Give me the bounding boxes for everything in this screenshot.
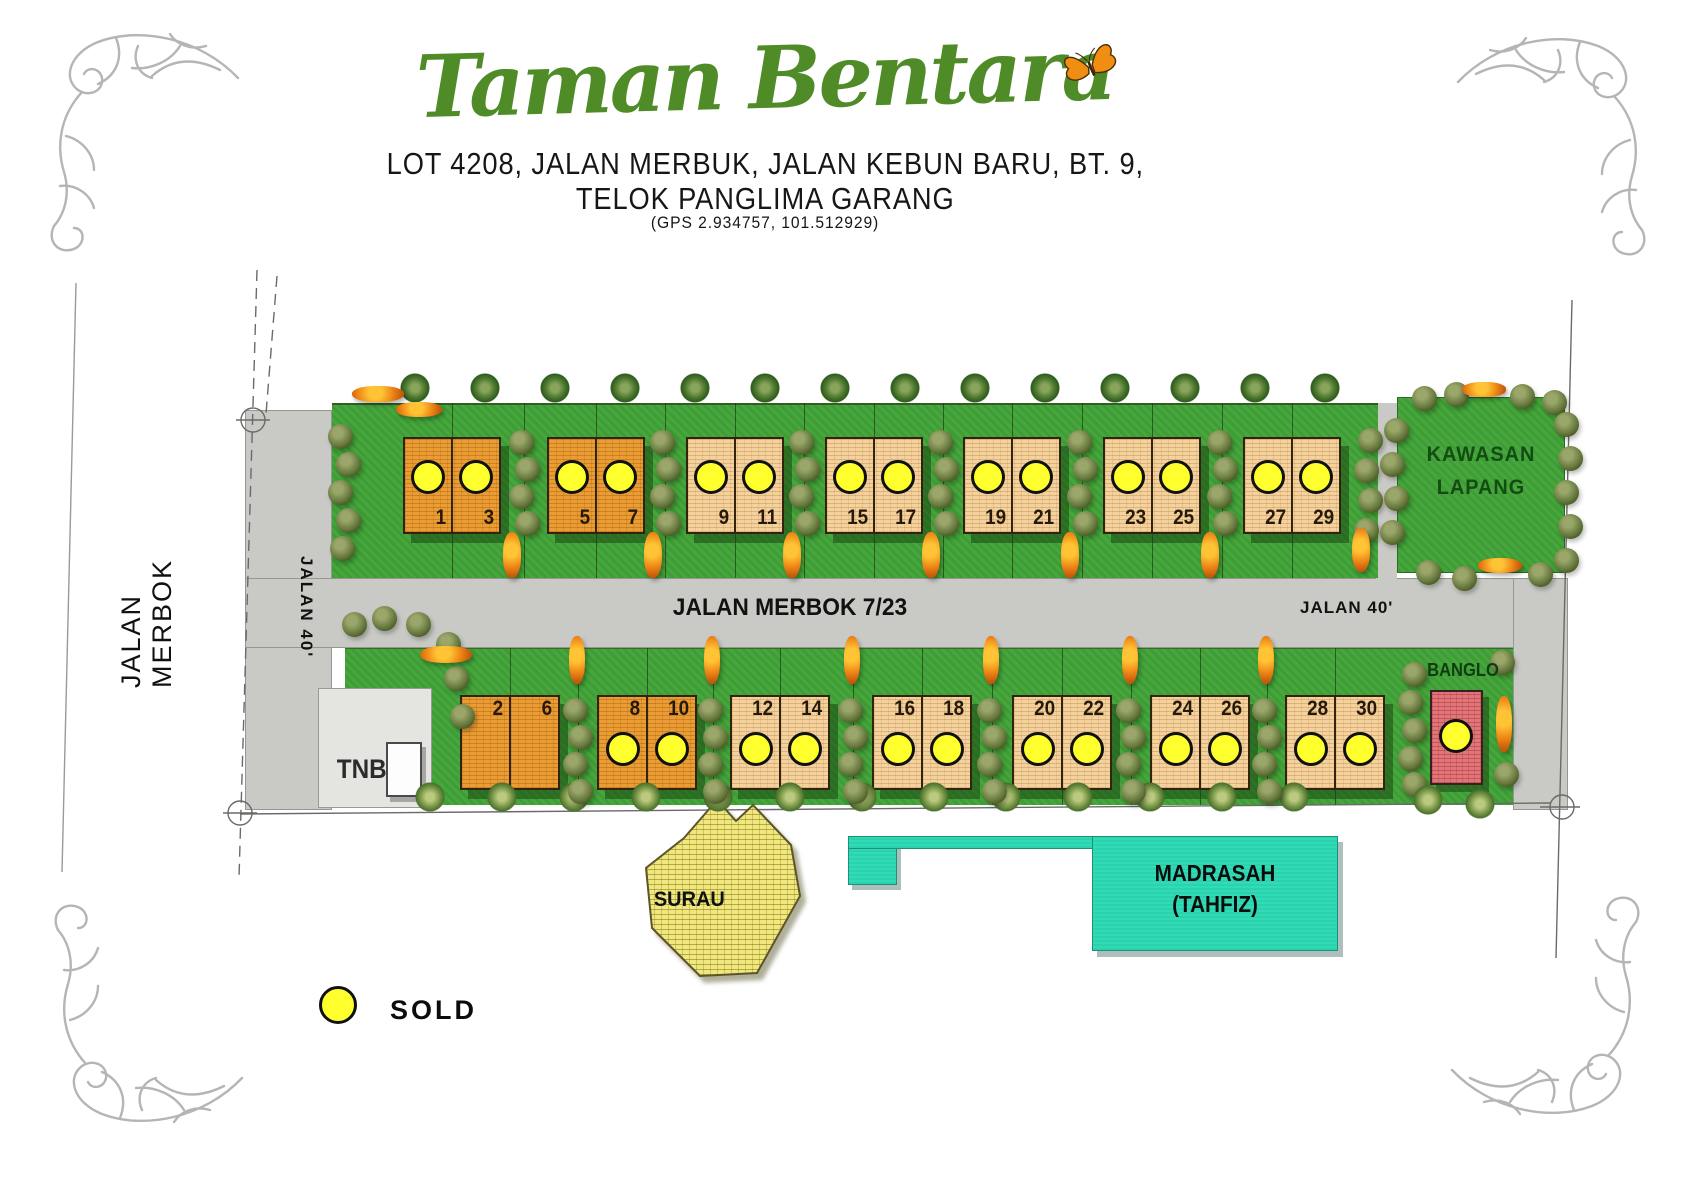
bush-icon [656, 511, 681, 536]
bush-icon [1073, 511, 1098, 536]
lot-unit-9: 9 [688, 439, 734, 532]
flower-patch-icon [783, 532, 801, 578]
lot-number: 17 [895, 506, 916, 530]
sold-marker [1159, 732, 1193, 766]
tree-icon [486, 781, 518, 813]
bush-icon [515, 457, 540, 482]
lot-block-20-22: 2022 [1012, 695, 1112, 790]
lot-block-24-26: 2426 [1150, 695, 1250, 790]
bush-icon [1067, 484, 1092, 509]
bush-icon [1494, 762, 1519, 787]
lot-number: 21 [1033, 506, 1054, 530]
lot-number: 28 [1307, 697, 1328, 721]
bush-icon [650, 484, 675, 509]
tree-icon [1239, 372, 1271, 404]
bush-icon [703, 779, 728, 804]
bush-icon [1452, 566, 1477, 591]
lot-block-19-21: 1921 [963, 437, 1061, 534]
lot-block-1-3: 13 [403, 437, 501, 534]
tree-icon [749, 372, 781, 404]
sold-marker [742, 460, 776, 494]
bush-icon [1402, 718, 1427, 743]
corner-ornament-icon [1440, 892, 1670, 1132]
sold-legend-label: SOLD [390, 995, 477, 1026]
flower-patch-icon [1462, 382, 1506, 397]
lot-number: 15 [847, 506, 868, 530]
bush-icon [1554, 412, 1579, 437]
surau-label: SURAU [654, 888, 725, 912]
lot-unit-20: 20 [1014, 697, 1061, 788]
lot-number: 1 [436, 506, 447, 530]
lot-block-9-11: 911 [686, 437, 784, 534]
sold-marker [411, 460, 445, 494]
lot-block-15-17: 1517 [825, 437, 923, 534]
lot-number: 25 [1173, 506, 1194, 530]
bush-icon [1416, 560, 1441, 585]
lot-unit-3: 3 [451, 439, 499, 532]
lot-unit-21: 21 [1011, 439, 1059, 532]
sold-marker [971, 460, 1005, 494]
gps-coordinates: (GPS 2.934757, 101.512929) [0, 213, 1530, 233]
site-plan-page: Taman Bentara LOT 4208, JALAN MERBUK, JA… [0, 0, 1697, 1200]
sold-marker [1159, 460, 1193, 494]
flower-patch-icon [1061, 532, 1079, 578]
flower-patch-icon [503, 532, 521, 578]
bush-icon [1358, 488, 1383, 513]
lot-number: 16 [894, 697, 915, 721]
bush-icon [982, 725, 1007, 750]
lot-number: 30 [1356, 697, 1377, 721]
bush-icon [789, 430, 814, 455]
bush-icon [1121, 725, 1146, 750]
tree-icon [414, 781, 446, 813]
flower-patch-icon [420, 646, 472, 663]
sold-legend-marker [319, 986, 357, 1024]
bush-icon [1252, 698, 1277, 723]
bush-icon [563, 698, 588, 723]
flower-patch-icon [922, 532, 940, 578]
road-label-main: JALAN MERBOK 7/23 [629, 594, 952, 622]
bush-icon [1067, 430, 1092, 455]
lot-unit-22: 22 [1061, 697, 1110, 788]
bush-icon [977, 752, 1002, 777]
bush-icon [568, 779, 593, 804]
lot-block-28-30: 2830 [1285, 695, 1385, 790]
lot-unit-11: 11 [734, 439, 782, 532]
sold-marker [739, 732, 773, 766]
tree-icon [1029, 372, 1061, 404]
lot-unit-24: 24 [1152, 697, 1199, 788]
bush-icon [568, 725, 593, 750]
lot-number: 27 [1265, 506, 1286, 530]
bush-icon [1358, 428, 1383, 453]
sold-marker [788, 732, 822, 766]
road-label-right-width: JALAN 40' [1300, 598, 1393, 618]
lot-unit-5: 5 [549, 439, 595, 532]
sold-marker [1021, 732, 1055, 766]
bush-icon [1412, 386, 1437, 411]
flower-patch-icon [352, 386, 404, 402]
lot-number: 20 [1034, 697, 1055, 721]
bush-icon [515, 511, 540, 536]
lot-unit-19: 19 [965, 439, 1011, 532]
bush-icon [1558, 446, 1583, 471]
bush-icon [934, 457, 959, 482]
bush-icon [1354, 458, 1379, 483]
lot-unit-28: 28 [1287, 697, 1334, 788]
bush-icon [1213, 511, 1238, 536]
lot-unit-26: 26 [1199, 697, 1248, 788]
bush-icon [444, 666, 469, 691]
sold-marker [603, 460, 637, 494]
tree-icon [1464, 788, 1496, 820]
bush-icon [1554, 548, 1579, 573]
address-line-2: TELOK PANGLIMA GARANG [0, 181, 1530, 217]
bush-icon [1558, 514, 1583, 539]
tree-icon [819, 372, 851, 404]
flower-patch-icon [704, 636, 720, 684]
lot-block-23-25: 2325 [1103, 437, 1201, 534]
bush-icon [838, 698, 863, 723]
tree-icon [774, 781, 806, 813]
lot-block-27-29: 2729 [1243, 437, 1341, 534]
lot-number: 19 [985, 506, 1006, 530]
tree-icon [1169, 372, 1201, 404]
lot-number: 26 [1221, 697, 1242, 721]
bush-icon [703, 725, 728, 750]
sold-marker [1019, 460, 1053, 494]
bush-icon [1073, 457, 1098, 482]
lot-unit-27: 27 [1245, 439, 1291, 532]
corner-ornament-icon [24, 900, 254, 1140]
bush-icon [1252, 752, 1277, 777]
tree-icon [1206, 781, 1238, 813]
sold-marker [1343, 732, 1377, 766]
tree-icon [1062, 781, 1094, 813]
flower-patch-icon [1258, 636, 1274, 684]
sold-marker [881, 460, 915, 494]
bush-icon [1207, 430, 1232, 455]
bush-icon [1116, 698, 1141, 723]
bush-icon [934, 511, 959, 536]
flower-patch-icon [983, 636, 999, 684]
lot-number: 10 [668, 697, 689, 721]
bush-icon [650, 430, 675, 455]
flower-patch-icon [396, 402, 442, 417]
flower-patch-icon [1496, 696, 1512, 752]
flower-patch-icon [1478, 558, 1522, 573]
lot-number: 18 [943, 697, 964, 721]
lot-unit-17: 17 [873, 439, 921, 532]
bush-icon [372, 606, 397, 631]
bush-icon [1257, 725, 1282, 750]
lot-number: 3 [484, 506, 495, 530]
bush-icon [342, 612, 367, 637]
bush-icon [843, 725, 868, 750]
lot-number: 6 [542, 697, 553, 721]
bush-icon [928, 430, 953, 455]
bush-icon [328, 424, 353, 449]
sold-marker [1299, 460, 1333, 494]
lot-block-5-7: 57 [547, 437, 645, 534]
tree-icon [679, 372, 711, 404]
bush-icon [406, 612, 431, 637]
lot-block-16-18: 1618 [872, 695, 972, 790]
bush-icon [789, 484, 814, 509]
tree-icon [1309, 372, 1341, 404]
lot-number: 7 [628, 506, 639, 530]
sold-marker [1294, 732, 1328, 766]
sold-marker [606, 732, 640, 766]
address-line-1: LOT 4208, JALAN MERBUK, JALAN KEBUN BARU… [0, 146, 1530, 182]
flower-patch-icon [1352, 528, 1370, 572]
bush-icon [336, 452, 361, 477]
flower-patch-icon [844, 636, 860, 684]
bush-icon [928, 484, 953, 509]
lot-unit-30: 30 [1334, 697, 1383, 788]
lot-number: 9 [719, 506, 730, 530]
bush-icon [1402, 662, 1427, 687]
bush-icon [330, 536, 355, 561]
lot-number: 24 [1172, 697, 1193, 721]
sold-marker [655, 732, 689, 766]
lot-unit-15: 15 [827, 439, 873, 532]
flower-patch-icon [644, 532, 662, 578]
bush-icon [1398, 690, 1423, 715]
bush-icon [982, 779, 1007, 804]
tree-icon [959, 372, 991, 404]
sold-marker [694, 460, 728, 494]
lot-block-2-6: 26 [460, 695, 560, 790]
tree-icon [630, 781, 662, 813]
sold-marker [833, 460, 867, 494]
lot-unit-25: 25 [1151, 439, 1199, 532]
bush-icon [1398, 746, 1423, 771]
bush-icon [698, 698, 723, 723]
lot-number: 29 [1313, 506, 1334, 530]
sold-marker [1251, 460, 1285, 494]
bush-icon [509, 484, 534, 509]
bush-icon [1121, 779, 1146, 804]
lot-number: 8 [630, 697, 641, 721]
road-label-left-width: JALAN 40' [296, 556, 316, 726]
lot-unit-1: 1 [405, 439, 451, 532]
bush-icon [450, 704, 475, 729]
sold-marker [1439, 719, 1473, 753]
bush-icon [698, 752, 723, 777]
tree-icon [469, 372, 501, 404]
bush-icon [1213, 457, 1238, 482]
sold-marker [1111, 460, 1145, 494]
tree-icon [609, 372, 641, 404]
bush-icon [795, 457, 820, 482]
bush-icon [1528, 562, 1553, 587]
flower-patch-icon [1201, 532, 1219, 578]
lot-number: 12 [752, 697, 773, 721]
bush-icon [977, 698, 1002, 723]
bush-icon [656, 457, 681, 482]
sold-marker [930, 732, 964, 766]
banglo-label: BANGLO [1427, 660, 1499, 681]
lot-number: 23 [1125, 506, 1146, 530]
sold-marker [555, 460, 589, 494]
tree-icon [889, 372, 921, 404]
sold-marker [1208, 732, 1242, 766]
lot-number: 22 [1083, 697, 1104, 721]
bush-icon [1257, 779, 1282, 804]
lot-number: 14 [801, 697, 822, 721]
open-space-label: KAWASANLAPANG [1401, 438, 1561, 504]
bush-icon [838, 752, 863, 777]
madrasah-label: MADRASAH(TAHFIZ) [1104, 858, 1325, 920]
lot-number: 11 [757, 506, 777, 530]
lot-unit-16: 16 [874, 697, 921, 788]
bush-icon [1380, 520, 1405, 545]
tree-icon [918, 781, 950, 813]
sold-marker [1070, 732, 1104, 766]
lot-number: 5 [580, 506, 591, 530]
bush-icon [336, 508, 361, 533]
lot-unit-29: 29 [1291, 439, 1339, 532]
tree-icon [1412, 784, 1444, 816]
road-label-jalan-merbok: JALAN MERBOK [116, 468, 178, 688]
flower-patch-icon [1122, 636, 1138, 684]
madrasah-corridor [848, 836, 1094, 849]
lot-unit-18: 18 [921, 697, 970, 788]
lot-number: 2 [493, 697, 504, 721]
lot-unit-7: 7 [595, 439, 643, 532]
bush-icon [1207, 484, 1232, 509]
tree-icon [1099, 372, 1131, 404]
tree-icon [539, 372, 571, 404]
bush-icon [1116, 752, 1141, 777]
flower-patch-icon [569, 636, 585, 684]
bush-icon [563, 752, 588, 777]
tree-icon [1278, 781, 1310, 813]
bush-icon [795, 511, 820, 536]
bush-icon [843, 779, 868, 804]
bush-icon [328, 480, 353, 505]
bush-icon [1510, 384, 1535, 409]
tree-icon [399, 372, 431, 404]
sold-marker [459, 460, 493, 494]
lot-unit-6: 6 [509, 697, 558, 788]
sold-marker [881, 732, 915, 766]
tnb-label: TNB [337, 754, 387, 785]
lot-unit-23: 23 [1105, 439, 1151, 532]
bush-icon [509, 430, 534, 455]
